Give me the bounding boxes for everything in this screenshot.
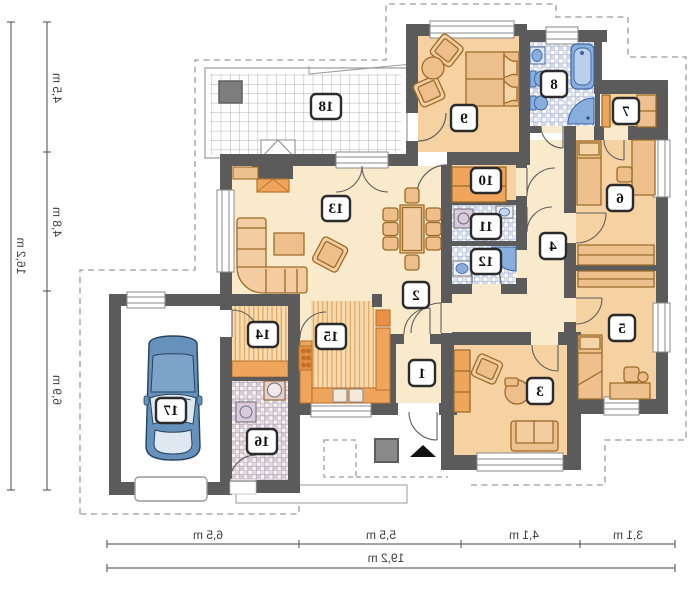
svg-text:10: 10 [479,173,494,189]
svg-text:2: 2 [412,288,420,304]
svg-text:6: 6 [616,191,624,207]
svg-text:13: 13 [329,201,344,217]
svg-text:15: 15 [324,329,339,345]
svg-text:7: 7 [622,104,630,120]
svg-text:11: 11 [479,219,493,235]
svg-text:8: 8 [550,77,558,93]
svg-text:1: 1 [418,366,426,382]
svg-text:5,5 m: 5,5 m [366,528,396,542]
svg-text:4: 4 [549,239,557,255]
svg-text:3,1 m: 3,1 m [613,528,643,542]
svg-text:3: 3 [536,384,544,400]
svg-text:4,5 m: 4,5 m [50,73,64,103]
svg-text:12: 12 [479,254,494,270]
svg-text:18: 18 [319,99,334,115]
svg-text:4,1 m: 4,1 m [509,528,539,542]
svg-text:14: 14 [255,327,271,343]
svg-text:9: 9 [460,111,468,127]
svg-text:17: 17 [163,403,179,419]
svg-text:16,2 m: 16,2 m [14,238,28,275]
svg-text:6,5 m: 6,5 m [193,528,223,542]
svg-text:16: 16 [254,434,270,450]
svg-text:5: 5 [618,321,626,337]
svg-text:4,8 m: 4,8 m [50,207,64,237]
svg-text:6,9 m: 6,9 m [50,375,64,405]
svg-text:19,2 m: 19,2 m [368,551,405,565]
